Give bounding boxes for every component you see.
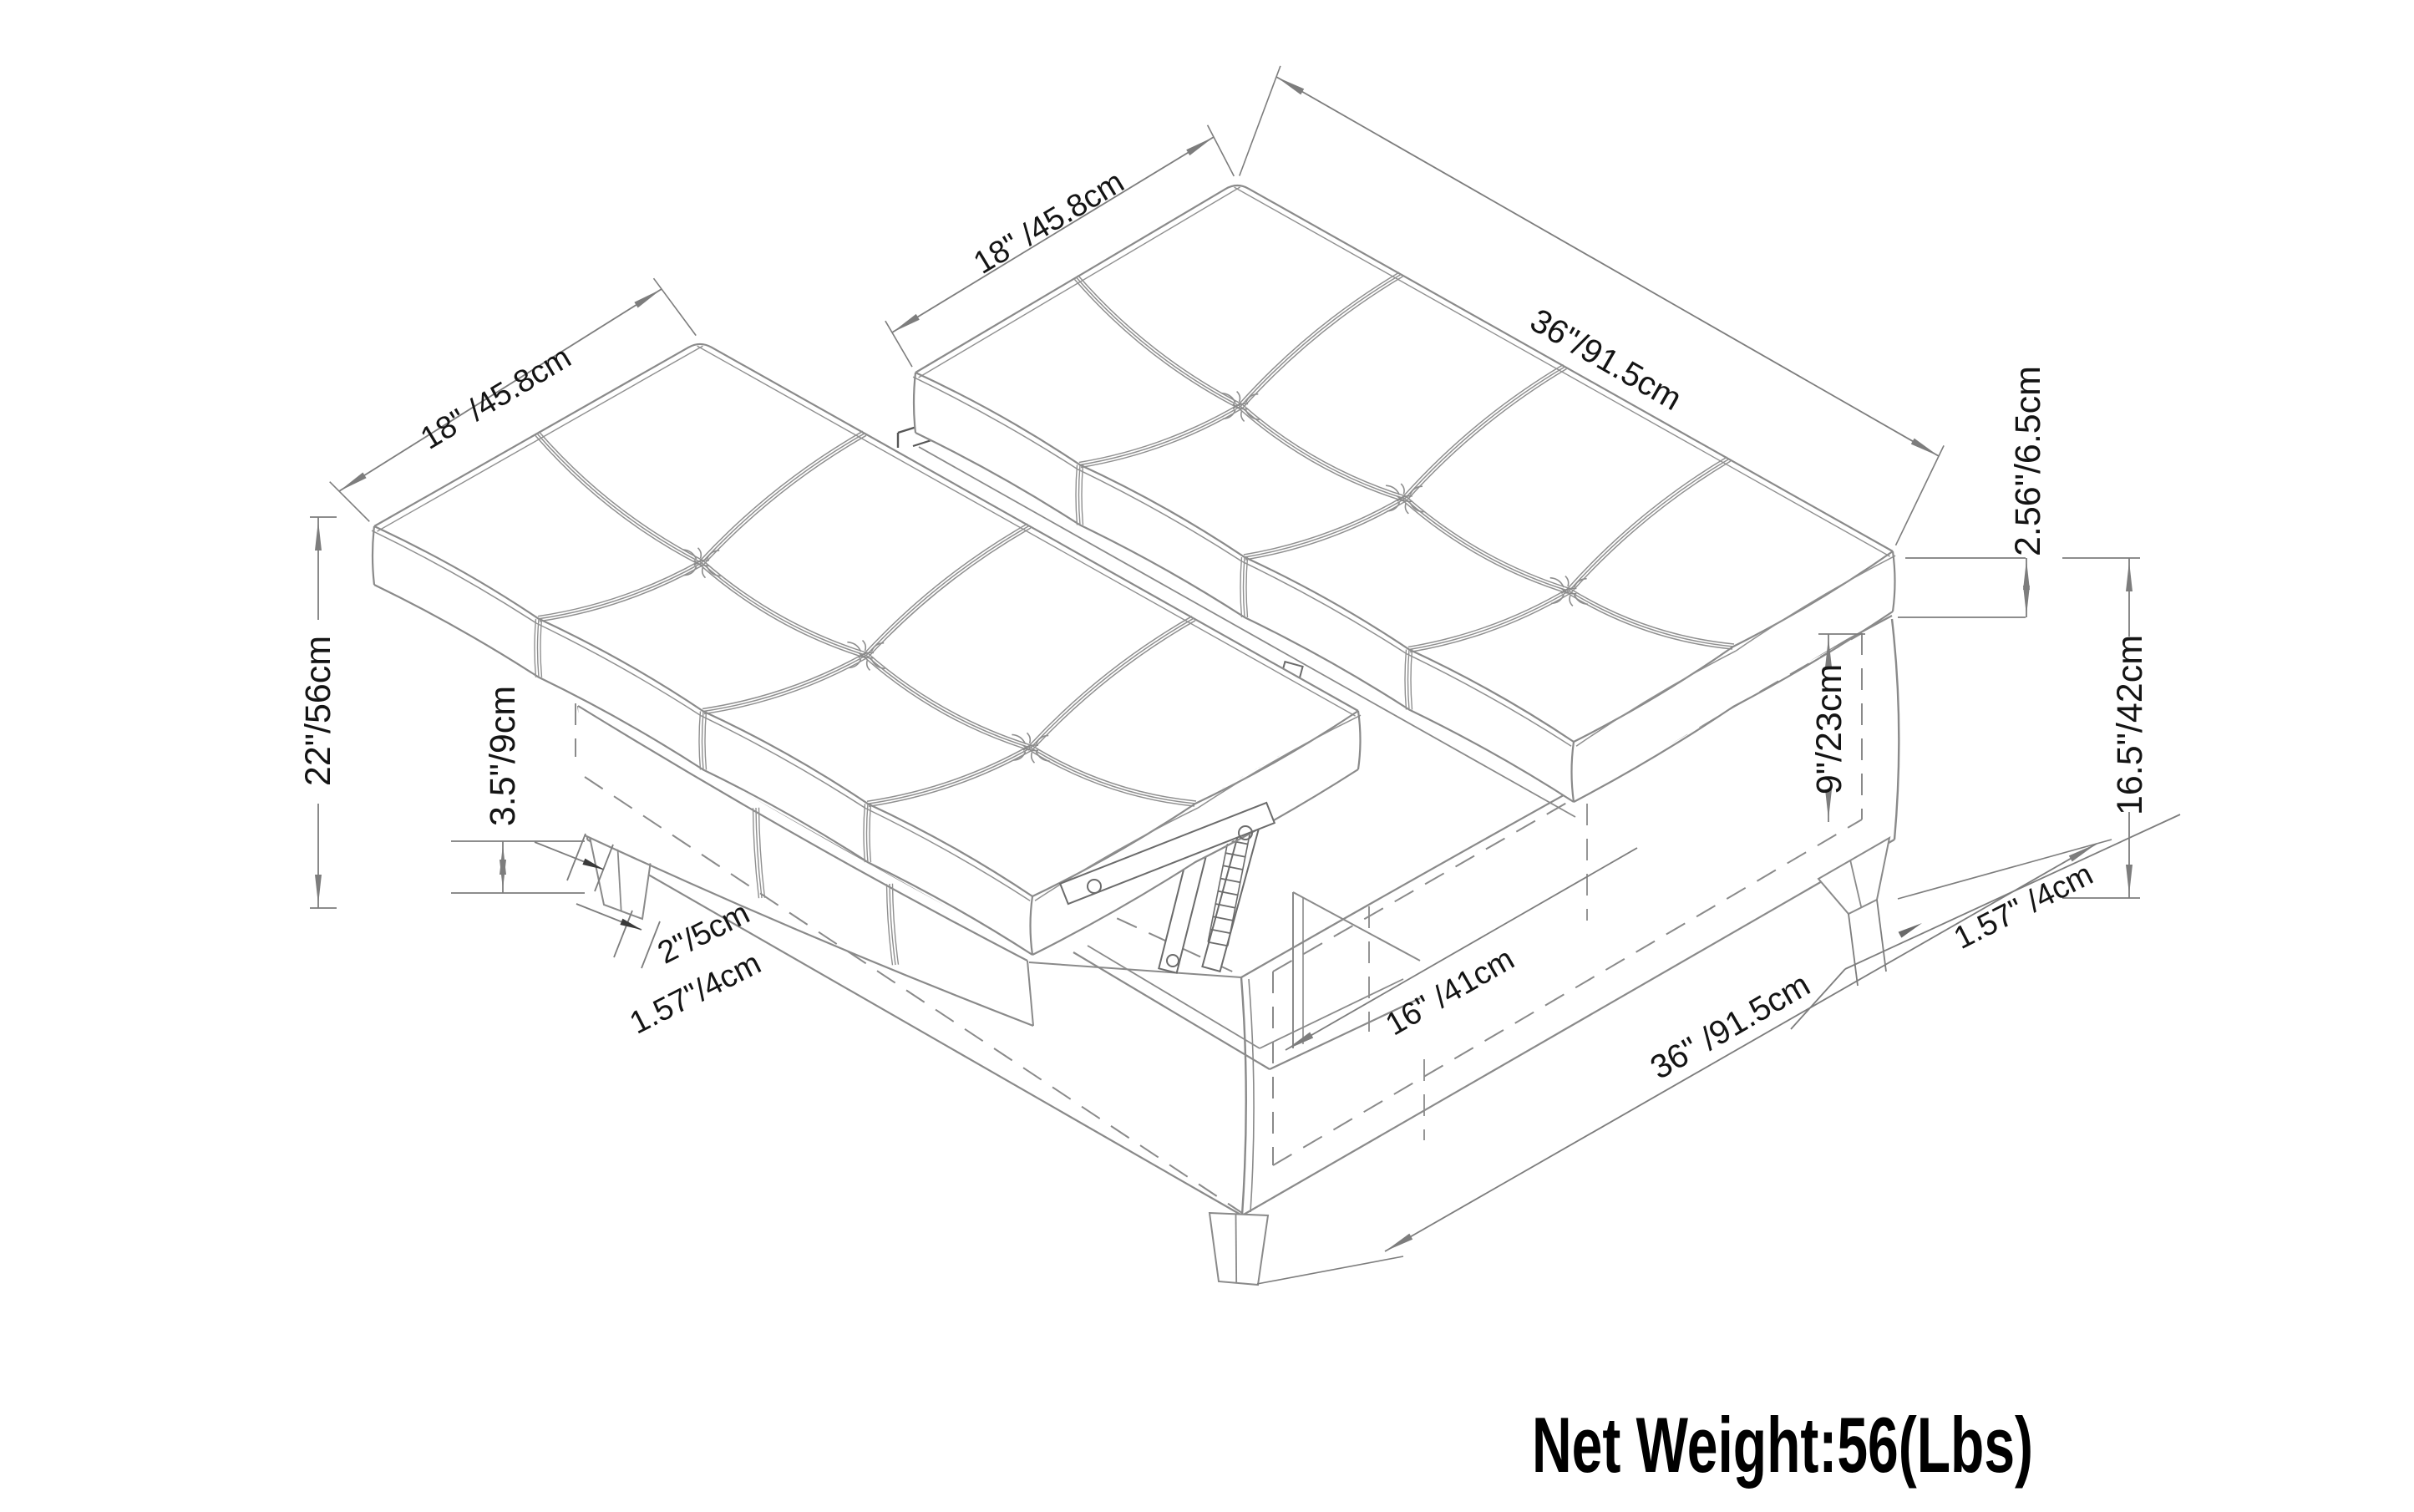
svg-text:22"/56cm: 22"/56cm (298, 636, 338, 786)
svg-text:3.5"/9cm: 3.5"/9cm (483, 686, 523, 826)
svg-text:2.56"/6.5cm: 2.56"/6.5cm (2008, 366, 2048, 556)
svg-text:16.5"/42cm: 16.5"/42cm (2110, 635, 2150, 815)
svg-text:9"/23cm: 9"/23cm (1809, 664, 1849, 794)
svg-text:Net Weight:56(Lbs): Net Weight:56(Lbs) (1532, 1401, 2033, 1489)
